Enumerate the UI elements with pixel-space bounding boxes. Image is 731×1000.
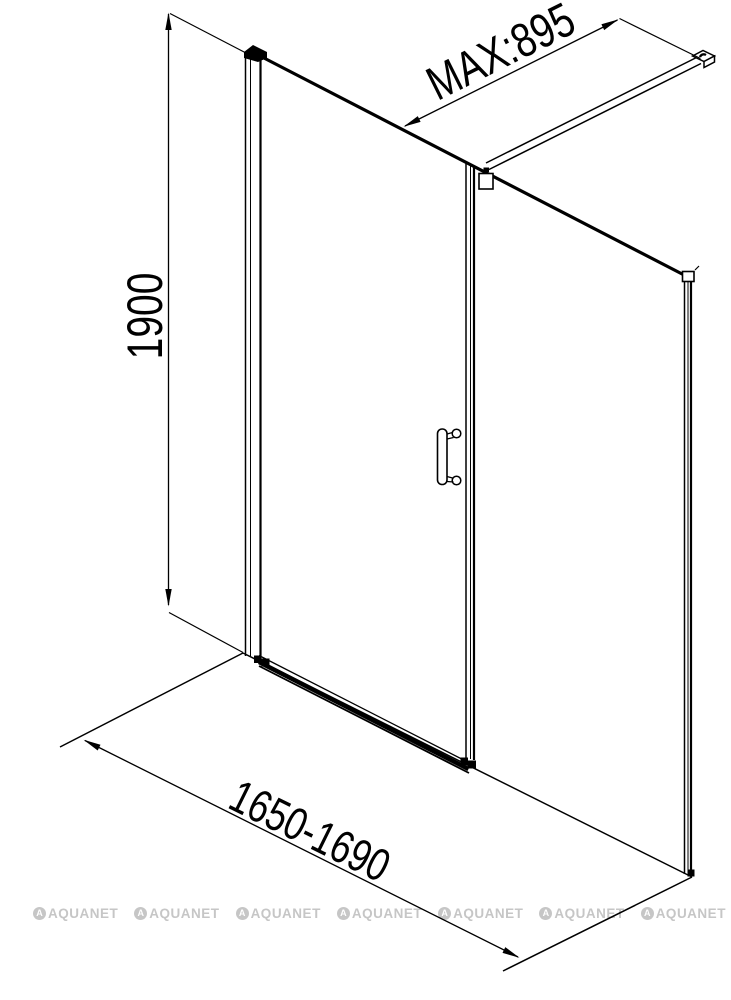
dimension-support-bar-label: MAX:895 [419, 0, 584, 111]
dimension-height-label: 1900 [116, 273, 173, 360]
dimension-support-bar: MAX:895 [404, 0, 701, 127]
side-panel-foot [688, 870, 695, 877]
side-panel [683, 266, 700, 877]
arrow-down-left-icon [404, 116, 421, 127]
arrow-up-icon [165, 13, 171, 31]
dimension-height: 1900 [116, 13, 246, 653]
door-panel [259, 163, 476, 774]
support-bar-wall-cap [693, 51, 715, 68]
dimension-width-label: 1650-1690 [222, 770, 399, 892]
support-bar-bracket [479, 174, 493, 190]
enclosure-drawing: 1900 MAX:895 1650-1690 [0, 0, 731, 1000]
shower-tray [60, 653, 692, 971]
technical-drawing-page: A AQUANET A AQUANET A AQUANET A AQUANET … [0, 0, 731, 1000]
door-bottom-rail [259, 656, 469, 774]
door-post-foot [461, 758, 469, 766]
arrow-up-right-icon [601, 19, 618, 30]
arrow-down-right-icon [503, 947, 520, 958]
dimension-width: 1650-1690 [84, 740, 520, 958]
door-handle [438, 429, 461, 485]
arrow-down-icon [165, 589, 171, 607]
side-panel-top-cap [683, 272, 695, 282]
door-post-foot [468, 761, 476, 769]
arrow-up-left-icon [84, 740, 101, 751]
wall-profile [244, 45, 270, 667]
